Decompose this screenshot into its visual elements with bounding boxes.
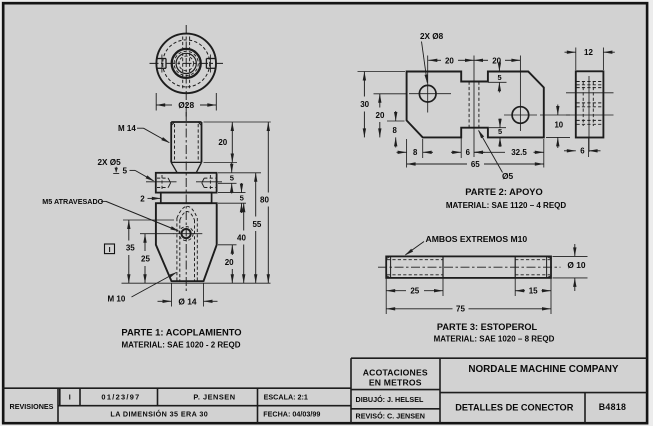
svg-text:PARTE 1: ACOPLAMIENTO: PARTE 1: ACOPLAMIENTO [121,326,241,337]
svg-text:Ø 14: Ø 14 [178,296,196,306]
svg-text:12: 12 [584,48,593,57]
svg-text:ESCALA: 2:1: ESCALA: 2:1 [264,393,308,402]
svg-text:M 14: M 14 [118,124,136,133]
svg-text:5: 5 [498,73,502,82]
svg-text:55: 55 [252,220,261,229]
svg-text:01/23/97: 01/23/97 [101,393,140,402]
svg-text:25: 25 [410,287,419,296]
svg-text:REVISÓ: C. JENSEN: REVISÓ: C. JENSEN [356,412,426,421]
svg-text:32.5: 32.5 [511,148,527,157]
svg-text:20: 20 [218,138,227,147]
svg-text:2X Ø5: 2X Ø5 [98,158,122,167]
svg-text:FECHA: 04/03/99: FECHA: 04/03/99 [263,410,320,419]
svg-text:6: 6 [580,147,585,156]
svg-text:2: 2 [140,194,145,203]
svg-text:75: 75 [456,305,465,314]
svg-text:20: 20 [376,111,385,120]
svg-text:Ø28: Ø28 [178,100,194,110]
svg-text:M 10: M 10 [108,294,126,303]
svg-text:25: 25 [141,254,150,263]
svg-text:10: 10 [554,121,563,130]
svg-text:P. JENSEN: P. JENSEN [193,393,235,402]
svg-text:Ø5: Ø5 [502,171,514,181]
svg-text:80: 80 [260,195,269,204]
svg-text:5: 5 [498,127,502,136]
svg-text:40: 40 [237,233,246,242]
svg-text:35: 35 [126,244,135,253]
svg-text:15: 15 [529,287,538,296]
svg-text:LA DIMENSIÓN 35 ERA 30: LA DIMENSIÓN 35 ERA 30 [110,410,208,419]
svg-text:AMBOS EXTREMOS M10: AMBOS EXTREMOS M10 [426,234,528,244]
svg-text:NORDALE MACHINE COMPANY: NORDALE MACHINE COMPANY [468,364,619,375]
svg-text:30: 30 [360,100,369,109]
svg-text:ACOTACIONES: ACOTACIONES [363,368,428,378]
svg-text:DETALLES DE CONECTOR: DETALLES DE CONECTOR [455,403,573,413]
svg-text:REVISIONES: REVISIONES [10,402,54,411]
svg-text:65: 65 [471,160,480,169]
svg-text:8: 8 [413,148,418,157]
svg-text:EN METROS: EN METROS [369,378,422,388]
svg-text:20: 20 [225,258,234,267]
svg-text:PARTE 2: APOYO: PARTE 2: APOYO [465,187,542,197]
svg-text:20: 20 [445,56,454,65]
svg-text:Ø 10: Ø 10 [567,260,585,270]
svg-text:6: 6 [466,148,471,157]
svg-text:MATERIAL: SAE 1020 – 8 REQD: MATERIAL: SAE 1020 – 8 REQD [434,335,555,344]
svg-text:PARTE 3: ESTOPEROL: PARTE 3: ESTOPEROL [437,322,538,332]
svg-text:5: 5 [123,166,128,175]
svg-text:I: I [69,393,71,402]
svg-text:M5 ATRAVESADO: M5 ATRAVESADO [42,197,103,206]
svg-text:MATERIAL: SAE 1020 - 2 REQD: MATERIAL: SAE 1020 - 2 REQD [122,340,241,349]
svg-text:DIBUJÓ: J. HELSEL: DIBUJÓ: J. HELSEL [356,395,425,404]
svg-text:2X Ø8: 2X Ø8 [420,32,444,41]
svg-text:8: 8 [393,126,398,135]
svg-text:B4818: B4818 [599,402,626,412]
svg-text:I: I [109,247,111,254]
svg-text:MATERIAL: SAE 1120 – 4 REQD: MATERIAL: SAE 1120 – 4 REQD [446,201,567,210]
